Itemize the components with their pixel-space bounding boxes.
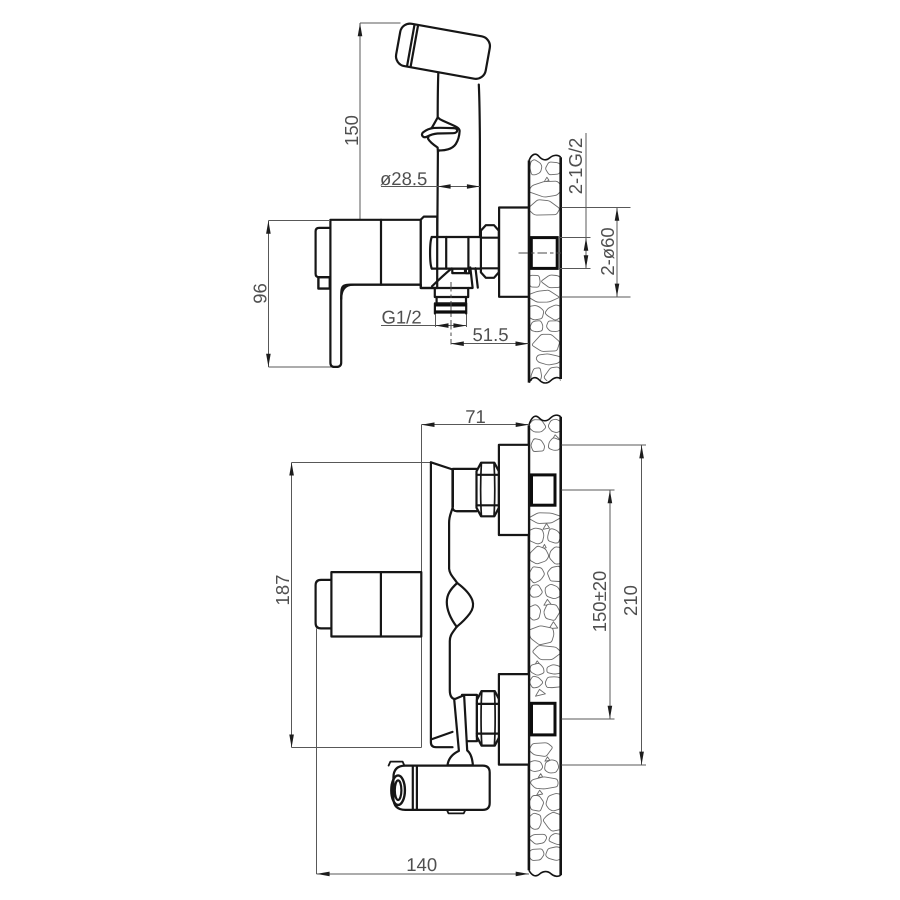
svg-text:2-1G/2: 2-1G/2 (565, 138, 586, 195)
svg-text:150: 150 (341, 115, 362, 146)
svg-text:210: 210 (620, 585, 641, 616)
svg-text:187: 187 (272, 575, 293, 606)
svg-text:51.5: 51.5 (472, 324, 508, 345)
svg-text:140: 140 (406, 854, 437, 875)
svg-text:G1/2: G1/2 (381, 307, 421, 328)
svg-text:150±20: 150±20 (589, 571, 610, 633)
svg-text:96: 96 (250, 283, 271, 304)
svg-text:ø28.5: ø28.5 (380, 168, 427, 189)
svg-text:2-ø60: 2-ø60 (597, 227, 618, 275)
svg-text:71: 71 (465, 406, 486, 427)
